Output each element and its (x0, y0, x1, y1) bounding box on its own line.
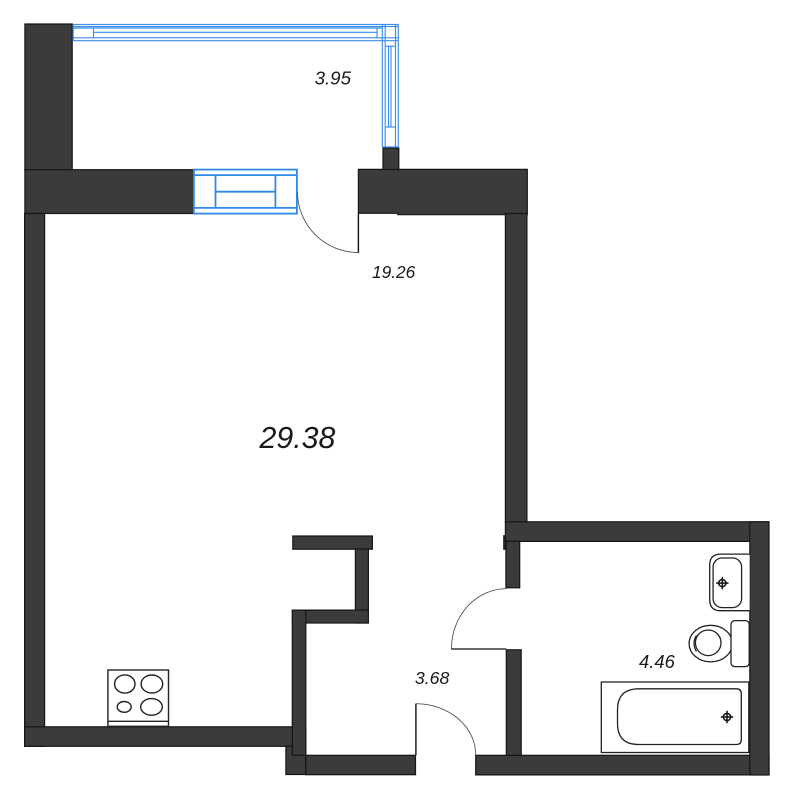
svg-text:3.95: 3.95 (315, 67, 352, 88)
svg-text:3.68: 3.68 (415, 668, 450, 688)
svg-text:19.26: 19.26 (372, 262, 416, 282)
svg-text:4.46: 4.46 (639, 651, 676, 672)
svg-text:29.38: 29.38 (259, 422, 336, 455)
